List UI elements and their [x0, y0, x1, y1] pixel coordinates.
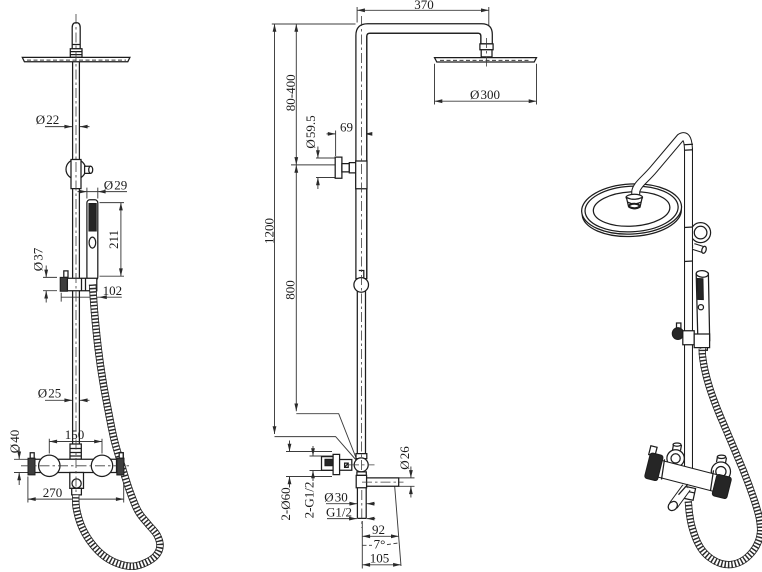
svg-text:370: 370	[414, 0, 434, 12]
svg-text:1200: 1200	[262, 218, 277, 244]
svg-text:270: 270	[43, 485, 63, 500]
svg-text:211: 211	[106, 230, 121, 249]
svg-text:Ø37: Ø37	[31, 247, 46, 271]
svg-text:Ø40: Ø40	[7, 430, 22, 454]
svg-text:Ø26: Ø26	[397, 446, 412, 470]
svg-text:92: 92	[372, 522, 385, 537]
svg-text:Ø59.5: Ø59.5	[303, 115, 318, 148]
svg-text:Ø30: Ø30	[324, 489, 348, 504]
svg-text:102: 102	[103, 283, 123, 298]
svg-text:7°: 7°	[374, 537, 386, 552]
svg-text:Ø25: Ø25	[38, 386, 62, 401]
svg-text:105: 105	[370, 550, 390, 565]
svg-text:2-Ø60: 2-Ø60	[278, 487, 293, 520]
svg-text:800: 800	[283, 280, 298, 300]
svg-text:150: 150	[65, 427, 85, 442]
svg-text:69: 69	[340, 119, 353, 134]
svg-text:Ø300: Ø300	[470, 87, 500, 102]
svg-text:80-400: 80-400	[283, 74, 298, 111]
svg-text:Ø29: Ø29	[104, 178, 128, 193]
svg-text:Ø22: Ø22	[36, 112, 60, 127]
svg-text:2-G1/2: 2-G1/2	[302, 482, 317, 519]
svg-text:G1/2: G1/2	[326, 504, 352, 519]
